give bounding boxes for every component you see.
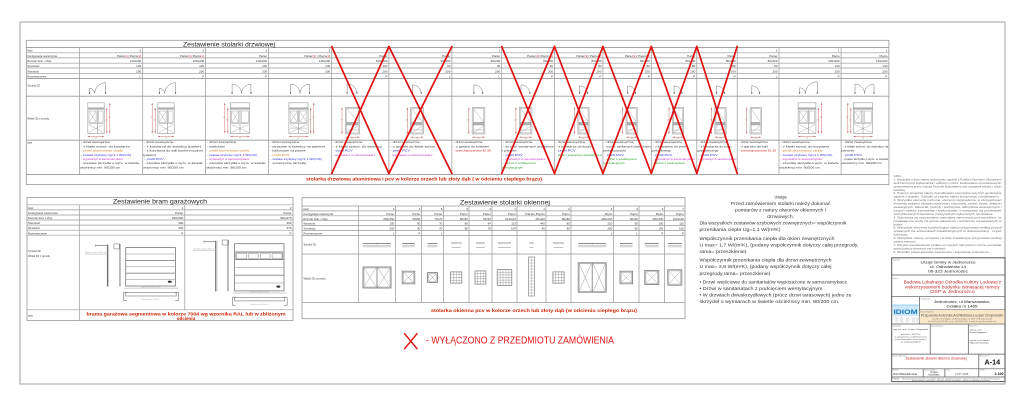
svg-text:stolarka drzwiowa aluminiowa i: stolarka drzwiowa aluminiowa i pcv w kol…: [306, 176, 543, 181]
svg-text:P: P: [289, 231, 291, 235]
svg-text:- profil PCV: - profil PCV: [698, 153, 718, 157]
svg-text:- z korytarza do sali konferen: - z korytarza do sali konferencyjnej: [144, 149, 203, 153]
svg-text:- profil aluminiowy ciepły: - profil aluminiowy ciepły: [81, 149, 124, 153]
svg-text:12: 12: [631, 138, 633, 140]
svg-text:12: 12: [806, 138, 808, 140]
svg-text:Architektura: Architektura: [893, 372, 917, 376]
svg-text:- tarasowe w świetlicy na part: - tarasowe w świetlicy na parterze: [270, 144, 326, 148]
svg-text:90: 90: [550, 64, 554, 68]
svg-text:Ilość: Ilość: [27, 49, 33, 53]
svg-text:Ilość: Ilość: [28, 206, 34, 210]
svg-text:20: 20: [849, 120, 851, 122]
svg-text:440: 440: [540, 222, 545, 226]
svg-text:- z korytarza do pom.: - z korytarza do pom.: [653, 144, 687, 148]
svg-text:210: 210: [607, 222, 612, 226]
svg-text:Data:: Data:: [946, 369, 951, 372]
svg-text:rama= przeszklenie): rama= przeszklenie): [700, 249, 748, 254]
svg-text:140x200: 140x200: [319, 59, 331, 63]
svg-text:P: P: [551, 75, 553, 79]
svg-text:200: 200: [389, 227, 394, 231]
svg-text:Asystenci:: Asystenci:: [969, 324, 978, 327]
svg-text:konstrukcyjna.: konstrukcyjna.: [894, 234, 909, 237]
svg-text:ul. Odrodzenia 14: ul. Odrodzenia 14: [930, 265, 966, 269]
svg-text:- z klatki schod. do korytarza: - z klatki schod. do korytarza: [81, 144, 130, 148]
svg-text:P: P: [265, 75, 267, 79]
svg-text:90: 90: [447, 64, 451, 68]
svg-text:Parter: Parter: [508, 212, 516, 216]
svg-text:- szerokie skrzydła o wym. w ś: - szerokie skrzydła o wym. w świetle: [81, 161, 140, 165]
svg-text:-: -: [329, 75, 330, 79]
svg-text:200: 200: [731, 69, 736, 73]
svg-text:- z klatki schod. do świetlicy: - z klatki schod. do świetlicy na: [843, 144, 889, 148]
svg-text:P: P: [599, 75, 601, 79]
svg-text:Parter(1)/ Piętro(1): Parter(1)/ Piętro(1): [576, 54, 601, 58]
svg-text:mgr inż. arch. Monika: mgr inż. arch. Monika: [970, 339, 991, 342]
svg-text:technicznymi wykonania i odbio: technicznymi wykonania i odbioru robót, …: [894, 182, 1003, 185]
svg-text:zgodnie z projektu. Odchyłki o: zgodnie z projektu. Odchyłki od projektu…: [894, 196, 1001, 199]
svg-text:Przed zamówieniem stolarki nal: Przed zamówieniem stolarki należy dokona…: [731, 201, 832, 206]
svg-text:Parter(1) Piętro(1): Parter(1) Piętro(1): [180, 54, 204, 58]
svg-text:- do pom. sanitarnych na parte: - do pom. sanitarnych na parterze: [503, 144, 554, 148]
svg-text:Piętro: Piętro: [832, 54, 840, 58]
svg-text:Piętro: Piętro: [605, 212, 613, 216]
svg-text:Dorota Długołęcka: Dorota Długołęcka: [970, 331, 988, 334]
svg-text:8. Wszelkie prawa autorskie za: 8. Wszelkie prawa autorskie zastrzeżone …: [894, 251, 991, 254]
svg-text:Sprawdzający:: Sprawdzający:: [931, 324, 944, 327]
svg-text:Symbol 2D: Symbol 2D: [28, 249, 41, 253]
svg-text:- z garażu do hali: - z garażu do hali: [739, 144, 769, 148]
svg-text:7. Rzędne wysokościowe podano: 7. Rzędne wysokościowe podano w metrach …: [894, 244, 1003, 247]
svg-text:100: 100: [658, 227, 663, 231]
svg-text:90: 90: [417, 222, 421, 226]
svg-text:390: 390: [286, 221, 291, 225]
svg-text:120: 120: [136, 64, 141, 68]
svg-text:130x200: 130x200: [828, 59, 840, 63]
svg-text:- profil aluminiowy ciepły: - profil aluminiowy ciepły: [781, 149, 824, 153]
svg-text:78x94: 78x94: [483, 217, 491, 221]
svg-text:12: 12: [755, 138, 757, 140]
svg-text:zweryfikowanych domiarów rzecz: zweryfikowanych domiarów rzeczywistych w…: [894, 213, 995, 216]
svg-text:100x110: 100x110: [673, 217, 684, 221]
svg-text:U max= 2,6 W/(m²K), (podany ws: U max= 2,6 W/(m²K), (podany współczynnik…: [700, 264, 832, 269]
svg-text:P: P: [648, 75, 650, 79]
svg-text:110: 110: [679, 222, 684, 226]
svg-text:80: 80: [567, 227, 571, 231]
svg-text:Parter: Parter: [412, 212, 420, 216]
svg-text:Widok 3D z przodu: Widok 3D z przodu: [28, 254, 50, 258]
svg-text:UWAGA:: UWAGA:: [893, 377, 900, 380]
svg-text:Piętro: Piętro: [656, 212, 664, 216]
svg-text:104x113: 104x113: [505, 217, 516, 221]
svg-text:P: P: [734, 75, 736, 79]
svg-text:40x440: 40x440: [535, 217, 545, 221]
svg-text:Inwestor:: Inwestor:: [893, 258, 901, 261]
svg-text:budowlanej.: budowlanej.: [894, 190, 906, 192]
svg-text:Widok 3D z przodu: Widok 3D z przodu: [27, 117, 49, 121]
svg-text:Parter: Parter: [175, 211, 183, 215]
svg-text:Pędzicka-Piotrowska: Pędzicka-Piotrowska: [970, 342, 990, 345]
svg-text:80: 80: [692, 64, 696, 68]
svg-text:200: 200: [607, 227, 612, 231]
svg-text:- drzwi wewnętrzne: - drzwi wewnętrzne: [605, 140, 635, 144]
svg-text:12: 12: [416, 138, 418, 140]
svg-text:80x200: 80x200: [768, 59, 778, 63]
svg-text:20: 20: [154, 120, 156, 122]
svg-text:U max= 1,7 W/(m²K), (podany ws: U max= 1,7 W/(m²K), (podany współczynnik…: [700, 243, 859, 248]
svg-text:porządkowego: porządkowego: [652, 149, 672, 153]
svg-text:94: 94: [488, 222, 492, 226]
svg-text:Współczynnik przenikania ciepł: Współczynnik przenikania ciepła dla drzw…: [700, 258, 833, 263]
svg-text:Kondygnacja macierzysta: Kondygnacja macierzysta: [28, 211, 58, 215]
svg-text:- wyposażyć w samozamykacz: - wyposażyć w samozamykacz: [503, 157, 546, 161]
svg-text:wymiary podano w centymetrach: wymiary podano w centymetrach oraz w mil…: [894, 247, 947, 250]
svg-text:Lokalizacja:: Lokalizacja:: [920, 299, 930, 301]
svg-text:80x200: 80x200: [726, 59, 736, 63]
svg-text:130: 130: [835, 64, 840, 68]
svg-text:- prawe skrzydło o wym. w świe: - prawe skrzydło o wym. w świetle: [843, 157, 889, 161]
svg-text:tel. (0-29) 64-34-091, kom. 60: tel. (0-29) 64-34-091, kom. 602-092-597,…: [928, 320, 997, 323]
svg-text:4. Dopuszcza się zastosowanie: 4. Dopuszcza się zastosowanie materiałów…: [894, 216, 1003, 219]
svg-text:upr. ewidencyjny MA-078: upr. ewidencyjny MA-078: [900, 341, 920, 344]
svg-text:- drzwi wewnętrzne: - drzwi wewnętrzne: [144, 140, 174, 144]
svg-text:- profil PCV: - profil PCV: [605, 153, 625, 157]
svg-text:ościeżnicy min. 90/200 cm: ościeżnicy min. 90/200 cm: [143, 165, 184, 169]
svg-text:wysokość nadproża 2800 mm: wysokość nadproża 2800 mm: [193, 248, 215, 250]
svg-text:2. Poziomy posadzek należy zwe: 2. Poziomy posadzek należy zweryfikować …: [894, 192, 1003, 195]
svg-text:80: 80: [646, 64, 650, 68]
svg-text:200: 200: [382, 69, 387, 73]
svg-text:200: 200: [835, 69, 840, 73]
svg-text:Parter: Parter: [460, 212, 468, 216]
svg-text:20: 20: [223, 117, 225, 119]
svg-text:ościeżnicy min. 90/200 cm: ościeżnicy min. 90/200 cm: [842, 161, 883, 165]
svg-text:100x100: 100x100: [652, 217, 663, 221]
svg-text:posiadają one cechy nie gorsze: posiadają one cechy nie gorsze jakościow…: [894, 220, 1003, 223]
svg-text:80: 80: [774, 64, 778, 68]
svg-text:stolarka okienna pcv w kolorze: stolarka okienna pcv w kolorze orzech lu…: [431, 308, 638, 313]
svg-text:80: 80: [465, 222, 469, 226]
svg-text:Szerokość: Szerokość: [28, 221, 41, 225]
svg-text:Kondygnacja macierzysta: Kondygnacja macierzysta: [304, 212, 334, 216]
svg-text:mgr inż. arch.: mgr inż. arch.: [970, 329, 983, 332]
svg-text:200: 200: [548, 69, 553, 73]
svg-text:LUTY 2016: LUTY 2016: [955, 372, 969, 376]
svg-text:- wyposażyć w samozamykacz: - wyposażyć w samozamykacz: [781, 157, 824, 161]
svg-text:projektów branżowych.: projektów branżowych.: [894, 241, 917, 244]
svg-text:P: P: [181, 231, 183, 235]
svg-text:07-409 Ostrołęka, ul.Skrockieg: 07-409 Ostrołęka, ul.Skrockiego 2a, NIP …: [932, 318, 993, 321]
svg-text:104: 104: [511, 227, 516, 231]
svg-text:1:100: 1:100: [994, 372, 1003, 376]
svg-text:gospodarczego: gospodarczego: [697, 149, 719, 153]
svg-text:- wyposażyć w samozamykacz: - wyposażyć w samozamykacz: [207, 157, 250, 161]
svg-text:20: 20: [108, 117, 110, 119]
svg-text:150: 150: [389, 222, 394, 226]
svg-text:20: 20: [745, 120, 747, 122]
svg-text:OSP w Jednorożcu: OSP w Jednorożcu: [930, 289, 975, 294]
svg-text:20: 20: [710, 120, 712, 122]
svg-text:- drzwi wewnętrzne: - drzwi wewnętrzne: [781, 140, 811, 144]
svg-text:- szerokie skrzydła o wym. w ś: - szerokie skrzydła o wym. w świetle: [781, 161, 840, 165]
svg-text:- drzwi zewnętrzne: - drzwi zewnętrzne: [207, 140, 237, 144]
svg-text:06-323 Jednorożec: 06-323 Jednorożec: [928, 269, 968, 273]
svg-text:80: 80: [598, 64, 602, 68]
svg-text:90: 90: [417, 227, 421, 231]
svg-text:40: 40: [542, 227, 546, 231]
svg-text:- drzwi wewnętrzne: - drzwi wewnętrzne: [503, 140, 533, 144]
svg-text:200: 200: [495, 69, 500, 73]
svg-text:- zestaw szybowy Ug=1,1 W/(m²: - zestaw szybowy Ug=1,1 W/(m²K): [781, 153, 833, 157]
svg-text:300: 300: [178, 226, 183, 230]
svg-text:elektrycznym i sanitarnym. Wym: elektrycznym i sanitarnym. Wymiary stola…: [912, 379, 991, 382]
svg-text:12: 12: [720, 138, 722, 140]
svg-text:- w pom. sanitarnych (dam. i k: - w pom. sanitarnych (dam. i kabin: [605, 144, 652, 148]
svg-text:- zestaw szybowy Ug=1,1 W/(m²: - zestaw szybowy Ug=1,1 W/(m²K): [270, 157, 322, 161]
svg-text:Zestawienie stolarki okiennej: Zestawienie stolarki okiennej: [460, 200, 550, 207]
svg-text:Szerokość bramy 3900 mm: Szerokość bramy 3900 mm: [141, 286, 161, 288]
svg-text:Zestawienie bram garażowych: Zestawienie bram garażowych: [113, 199, 207, 206]
svg-text:P: P: [661, 232, 663, 236]
svg-text:140x200: 140x200: [256, 59, 268, 63]
svg-text:Wysokość: Wysokość: [304, 222, 316, 226]
svg-text:projekcie.: projekcie.: [894, 223, 904, 226]
svg-text:Ilość: Ilość: [304, 207, 310, 211]
svg-text:Uwaga: Uwaga: [775, 195, 788, 200]
svg-text:12: 12: [165, 138, 167, 140]
svg-text:200: 200: [645, 69, 650, 73]
svg-text:wysokość nadproża 2800 mm: wysokość nadproża 2800 mm: [85, 252, 107, 254]
svg-text:• Drzwi w sanitariatach z podc: • Drzwi w sanitariatach z podcięciem wen…: [700, 286, 824, 291]
svg-text:- przeciwpożarowe EI 30: - przeciwpożarowe EI 30: [454, 149, 492, 153]
svg-text:390: 390: [178, 221, 183, 225]
svg-text:20: 20: [846, 117, 848, 119]
svg-text:przegrody,rama= przeszklenie): przegrody,rama= przeszklenie): [700, 271, 772, 276]
svg-text:113: 113: [511, 222, 516, 226]
svg-text:90x90: 90x90: [412, 217, 420, 221]
svg-text:140x200: 140x200: [876, 59, 888, 63]
svg-text:12: 12: [862, 138, 864, 140]
svg-text:100: 100: [658, 222, 663, 226]
svg-text:Projekt: Projekt: [930, 371, 938, 374]
svg-text:Kondygnacja macierzysta: Kondygnacja macierzysta: [27, 54, 57, 58]
svg-text:140: 140: [262, 64, 267, 68]
svg-text:- zestaw szybowy Ug=1,1 W/(m²K: - zestaw szybowy Ug=1,1 W/(m²K): [207, 153, 257, 157]
svg-text:- z korytarza do kuchni: - z korytarza do kuchni: [556, 144, 594, 148]
svg-text:- wyposażyć w samozamykacz: - wyposażyć w samozamykacz: [653, 157, 696, 161]
svg-text:200: 200: [199, 69, 204, 73]
svg-text:Wysokość: Wysokość: [27, 69, 39, 73]
svg-text:- szerokie skrzydła o wym. w ś: - szerokie skrzydła o wym. w świetle: [144, 161, 203, 165]
svg-text:Dla wszystkich zestawów szybow: Dla wszystkich zestawów szybowych zewnęt…: [700, 221, 848, 226]
svg-text:IDIOM: IDIOM: [894, 309, 919, 316]
svg-text:200: 200: [690, 69, 695, 73]
svg-text:elewacyjnych, balustrad, pochy: elewacyjnych, balustrad, pochyły i pochw…: [894, 206, 1003, 209]
svg-text:Parter: Parter: [386, 212, 394, 216]
svg-text:80x80: 80x80: [562, 217, 570, 221]
svg-text:12: 12: [351, 138, 353, 140]
svg-text:120: 120: [199, 64, 204, 68]
svg-text:- profil PCV: - profil PCV: [144, 157, 164, 161]
svg-text:70x70: 70x70: [434, 217, 442, 221]
svg-text:12: 12: [478, 138, 480, 140]
svg-text:Piętro: Piętro: [562, 212, 570, 216]
svg-text:P: P: [682, 232, 684, 236]
svg-text:Szerokość bramy 3900 mm: Szerokość bramy 3900 mm: [250, 291, 270, 293]
svg-text:drzwiowych.: drzwiowych.: [767, 214, 794, 219]
svg-text:- drzwi wewnętrzne: - drzwi wewnętrzne: [556, 140, 586, 144]
svg-text:- symetryczne skrzydła: - symetryczne skrzydła: [270, 161, 306, 165]
svg-text:opracowanymi przez Instytut Te: opracowanymi przez Instytut Techniki Bud…: [894, 185, 1003, 188]
svg-text:ościeżnicy min. 90/200 cm: ościeżnicy min. 90/200 cm: [80, 165, 121, 169]
svg-text:80x80: 80x80: [460, 217, 468, 221]
svg-text:Parter: Parter: [259, 54, 267, 58]
svg-text:90: 90: [497, 64, 501, 68]
svg-text:Jednorożec, ul Warszawska;: Jednorożec, ul Warszawska;: [934, 300, 990, 304]
svg-text:- drzwi zewnętrzne: - drzwi zewnętrzne: [270, 140, 300, 144]
svg-text:ościeżnicy min. 90/200 cm: ościeżnicy min. 90/200 cm: [206, 165, 247, 169]
svg-text:200: 200: [325, 69, 330, 73]
svg-text:Zestawienie stolarki drzwiowej: Zestawienie stolarki drzwiowej: [183, 41, 275, 48]
svg-text:UWAGI:: UWAGI:: [894, 175, 903, 178]
svg-text:Parter: Parter: [483, 212, 491, 216]
svg-text:- przeciwpożarowe EI 30: - przeciwpożarowe EI 30: [739, 149, 777, 153]
svg-text:- drzwi wewnętrzne: - drzwi wewnętrzne: [653, 140, 683, 144]
svg-text:P: P: [202, 75, 204, 79]
svg-text:Skala:: Skala:: [980, 370, 985, 372]
svg-text:ościeżnicy min. 90/200 cm: ościeżnicy min. 90/200 cm: [779, 165, 820, 169]
svg-text:w specjalności architektoniczn: w specjalności architektonicznej: [895, 335, 928, 338]
svg-text:P: P: [885, 75, 887, 79]
svg-text:200: 200: [596, 69, 601, 73]
svg-text:20: 20: [312, 117, 314, 119]
svg-text:200: 200: [445, 69, 450, 73]
svg-text:20: 20: [105, 120, 107, 122]
svg-text:20: 20: [309, 120, 311, 122]
svg-text:100: 100: [679, 227, 684, 231]
svg-text:80: 80: [465, 227, 469, 231]
svg-text:opisanych na schematach lokali: opisanych na schematach lokalizacyjnych …: [894, 230, 1003, 233]
svg-text:- drzwi zewnętrzne: - drzwi zewnętrzne: [843, 140, 873, 144]
svg-text:- profil PCV: - profil PCV: [270, 153, 290, 157]
svg-text:Szerokość: Szerokość: [27, 64, 40, 68]
svg-text:• W drzwiach dwuskrzydłowych (: • W drzwiach dwuskrzydłowych (prócz drzw…: [700, 293, 853, 298]
svg-text:- drzwi wewnętrzne: - drzwi wewnętrzne: [333, 140, 363, 144]
svg-text:70: 70: [439, 227, 443, 231]
svg-text:- profil PCV: - profil PCV: [843, 153, 863, 157]
svg-text:200x210: 200x210: [601, 217, 612, 221]
svg-text:12: 12: [677, 138, 679, 140]
svg-text:Parter: Parter: [434, 212, 442, 216]
svg-text:20: 20: [406, 120, 408, 122]
svg-text:elementy stolarki i ślusarki o: elementy stolarki i ślusarki otworowej i…: [894, 203, 1003, 206]
svg-text:Piętro: Piętro: [630, 212, 638, 216]
svg-text:5. Wszystkie elementy konstruk: 5. Wszystkie elementy konstrukcyjne nale…: [894, 227, 1003, 230]
svg-text:90: 90: [635, 227, 639, 231]
svg-text:Urząd Gminy w Jednorożcu: Urząd Gminy w Jednorożcu: [921, 260, 976, 264]
svg-text:opis: opis: [28, 314, 33, 318]
svg-text:120x200: 120x200: [193, 59, 205, 63]
svg-text:Rozmieszczenie: Rozmieszczenie: [27, 75, 46, 79]
svg-text:- z klatki schod. do korytarza: - z klatki schod. do korytarza: [781, 144, 830, 148]
svg-text:20: 20: [514, 120, 516, 122]
svg-text:Parter(1) / Piętro(1): Parter(1) / Piętro(1): [304, 54, 330, 58]
svg-text:Rozmieszczenie: Rozmieszczenie: [304, 232, 323, 236]
svg-text:Działka nr 1465: Działka nr 1465: [947, 305, 978, 309]
svg-text:Piętro: Piętro: [676, 212, 684, 216]
svg-text:- drzwi z podcięciem: - drzwi z podcięciem: [503, 161, 535, 165]
svg-text:200: 200: [882, 69, 887, 73]
svg-text:20: 20: [341, 120, 343, 122]
svg-text:Współczynnik przenikania ciepł: Współczynnik przenikania ciepła dla okie…: [700, 236, 836, 241]
svg-text:- z dyżurki do klatki schod.: - z dyżurki do klatki schod.: [391, 144, 437, 148]
svg-text:P: P: [693, 75, 695, 79]
svg-text:- drzwi z podcięciem: - drzwi z podcięciem: [653, 161, 685, 165]
svg-text:Symbol 2D: Symbol 2D: [304, 243, 317, 247]
svg-text:3. Wszystkie elementy ruchome,: 3. Wszystkie elementy ruchome, elementy …: [894, 199, 1003, 202]
svg-text:90x90: 90x90: [630, 217, 638, 221]
svg-text:12: 12: [239, 138, 241, 140]
svg-text:Projektant:: Projektant:: [893, 324, 903, 327]
svg-text:- o garażu do kotłowni: - o garażu do kotłowni: [454, 144, 490, 148]
svg-text:Rozmiar Szer. x Wys.: Rozmiar Szer. x Wys.: [304, 217, 329, 221]
svg-text:20: 20: [817, 120, 819, 122]
svg-text:P: P: [418, 232, 420, 236]
svg-text:375: 375: [286, 226, 291, 230]
svg-text:P: P: [838, 75, 840, 79]
svg-text:parterze: parterze: [842, 149, 856, 153]
svg-text:Parter: Parter: [492, 54, 500, 58]
svg-text:- z korytarza do świetlicy (pa: - z korytarza do świetlicy (parter): [144, 144, 201, 148]
svg-text:- WYŁĄCZONO Z PRZEDMIOTU ZAMÓW: - WYŁĄCZONO Z PRZEDMIOTU ZAMÓWIENIA: [426, 333, 614, 346]
svg-text:120x200: 120x200: [130, 59, 142, 63]
svg-text:A-14: A-14: [985, 357, 1001, 366]
svg-text:Rozmiar Szer. x Wys.: Rozmiar Szer. x Wys.: [28, 216, 53, 220]
svg-text:Rozmiar Szer. x Wys.: Rozmiar Szer. x Wys.: [27, 59, 52, 63]
svg-text:opis: opis: [27, 141, 32, 145]
svg-text:Szerokość: Szerokość: [304, 227, 317, 231]
svg-text:12: 12: [525, 138, 527, 140]
svg-text:- balkonowe na piętrze: - balkonowe na piętrze: [270, 149, 306, 153]
svg-text:P: P: [385, 75, 387, 79]
svg-text:12: 12: [95, 138, 97, 140]
svg-text:390x300: 390x300: [172, 216, 184, 220]
svg-text:80: 80: [567, 222, 571, 226]
svg-text:70: 70: [439, 222, 443, 226]
svg-text:Parter(1)/ Piętro(1): Parter(1)/ Piętro(1): [625, 54, 650, 58]
svg-text:Symbol 2D: Symbol 2D: [27, 84, 40, 88]
svg-text:przenikania ciepła Ug=1,1 W/(m: przenikania ciepła Ug=1,1 W/(m²K): [700, 227, 782, 232]
svg-text:(piętro): (piętro): [143, 153, 156, 157]
svg-text:- profil aluminiowy ciepły: - profil aluminiowy ciepły: [207, 149, 250, 153]
svg-text:20: 20: [820, 117, 822, 119]
svg-text:Parter: Parter: [283, 211, 291, 215]
svg-text:- profil PCV: - profil PCV: [556, 149, 576, 153]
svg-text:- zestaw szybowy Ug=1,1 W/(m²K: - zestaw szybowy Ug=1,1 W/(m²K): [81, 153, 131, 157]
svg-text:Widok 3D z przodu: Widok 3D z przodu: [304, 277, 326, 281]
svg-text:80: 80: [732, 64, 736, 68]
svg-text:200: 200: [772, 69, 777, 73]
svg-text:Temat:: Temat:: [893, 277, 899, 280]
svg-text:20: 20: [151, 117, 153, 119]
svg-text:Wysokość: Wysokość: [28, 226, 40, 230]
svg-text:200x150: 200x150: [383, 217, 394, 221]
svg-text:- szerokie skrzydła o wym. w ś: - szerokie skrzydła o wym. w świetle: [207, 161, 266, 165]
svg-text:90x200: 90x200: [490, 59, 500, 63]
svg-text:- wyposażyć w samozamykacz: - wyposażyć w samozamykacz: [81, 157, 124, 161]
svg-text:pomiarów z natury otworów okie: pomiarów z natury otworów okiennych i: [735, 208, 826, 213]
svg-text:78: 78: [488, 227, 492, 231]
svg-text:6. Wszystkie otwory, przejścia: 6. Wszystkie otwory, przejścia i bruzdy …: [894, 237, 1003, 240]
